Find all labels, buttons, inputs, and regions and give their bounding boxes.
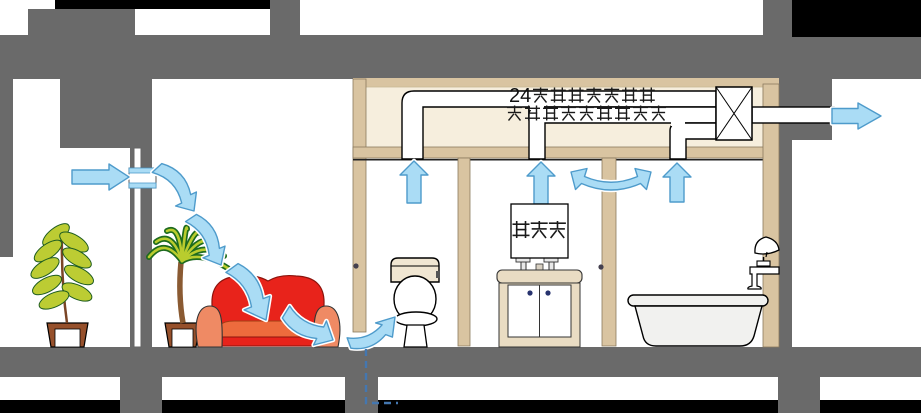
svg-text:24: 24	[509, 85, 531, 107]
